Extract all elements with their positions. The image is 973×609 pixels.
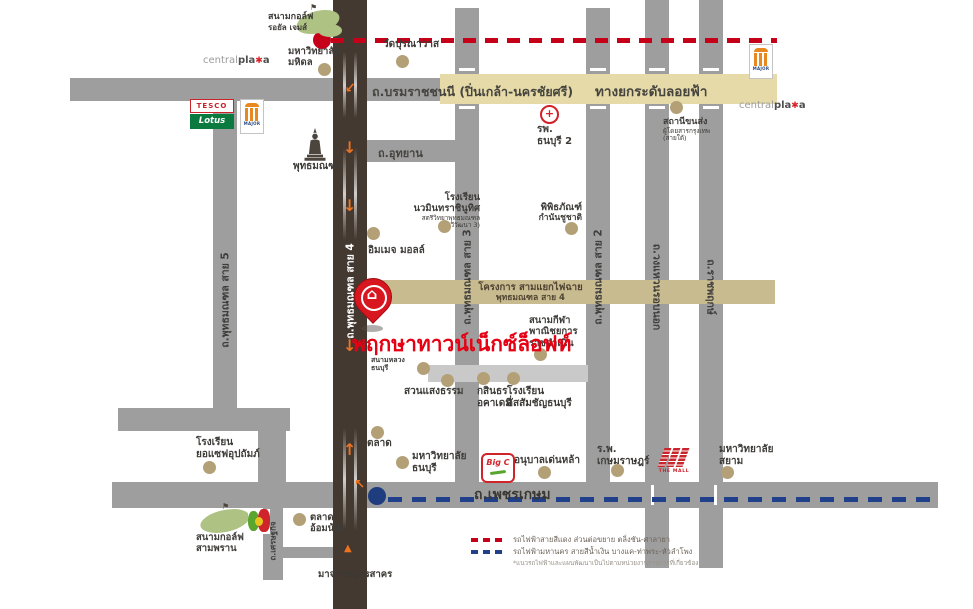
label-line: (สายใต้) — [663, 135, 710, 143]
up-arrow-icon: ↑ — [343, 442, 356, 458]
landmark-southern-bus-terminal: สถานีขนส่ง ผู้โดยสารกรุงเทพ (สายใต้) — [663, 117, 710, 143]
road-marking — [343, 148, 346, 240]
crossing-tick — [459, 106, 475, 109]
road-connector-west-stub — [258, 431, 286, 486]
landmark-wat-puranawat: วัดปุรณาวาส — [383, 39, 439, 51]
crossing-tick — [703, 106, 719, 109]
golf-course-shape — [318, 24, 342, 37]
label-line: ตลาด — [310, 512, 345, 523]
project-location-pin: ⌂ — [352, 276, 392, 332]
landmark-dot — [611, 464, 624, 477]
road-label-skyway: ทางยกระดับลอยฟ้า — [595, 80, 707, 102]
location-map: ถ.บรมราชชนนี (ปิ่นเกล้า-นครชัยศรี) ทางยก… — [0, 0, 973, 609]
landmark-assumption-thonburi: โรงเรียน อัสสัมชัญธนบุรี — [507, 386, 572, 410]
major-text: MAJOR — [241, 121, 263, 126]
road-label-phutthamonthon-sai3: ถ.พุทธมณฑล สาย 3 — [459, 229, 476, 324]
landmark-phutthamonthon-park: พุทธมณฑล — [293, 161, 343, 173]
down-arrow-icon: ↓ — [343, 140, 356, 156]
label-line: มหาวิทยาลัย — [412, 451, 466, 463]
label-line: ร.พ. — [597, 444, 649, 456]
road-connector-south — [283, 547, 333, 558]
landmark-dot — [417, 362, 430, 375]
big-c-logo: Big C — [481, 453, 515, 483]
road-label-phetkasem: ถ.เพชรเกษม — [474, 484, 551, 506]
landmark-siam-university: มหาวิทยาลัย สยาม — [719, 444, 773, 468]
label-line: โรงเรียน — [507, 386, 572, 398]
major-cineplex-logo: MAJOR — [240, 99, 264, 134]
landmark-denla-kindergarten: อนุบาลเด่นหล้า — [514, 455, 580, 467]
tesco-lotus-logo: TESCO Lotus — [190, 99, 234, 129]
golf-flag-icon: ⚑ — [222, 502, 229, 511]
landmark-dot — [565, 222, 578, 235]
crossing-tick — [649, 68, 665, 71]
label-line: อัสสัมชัญธนบุรี — [507, 398, 572, 410]
label-line: ยอแซฟอุปถัมภ์ — [196, 449, 260, 461]
crossing-tick — [459, 68, 475, 71]
road-marking — [354, 148, 357, 240]
crossing-tick — [651, 485, 654, 505]
centralplaza-logo: centralpla✱a — [203, 55, 270, 66]
hospital-cross-icon: + — [540, 105, 559, 124]
label-line: อ้อมน้อย — [310, 523, 345, 534]
legend-note: *แนวรถไฟฟ้าและแผนพัฒนาเป็นไปตามหน่วยงานร… — [513, 558, 698, 568]
landmark-thonburi2-hospital: รพ. ธนบุรี 2 — [537, 124, 572, 148]
legend-blue-line — [471, 550, 506, 554]
label-line: รอยัล เจมส์ — [268, 23, 313, 33]
house-icon: ⌂ — [352, 285, 392, 303]
road-connector-west — [118, 408, 290, 431]
label-line: มหิดล — [288, 57, 340, 68]
lotus-text: Lotus — [190, 114, 234, 129]
triangle-up-icon: ▲ — [344, 544, 352, 554]
label-line: มหาวิทยาลัย — [288, 46, 340, 57]
landmark-dot — [670, 101, 683, 114]
big-c-text: Big C — [483, 455, 513, 471]
label-line: สนามกีฬา — [529, 315, 578, 326]
crossing-tick — [714, 485, 717, 505]
label-line: โรงเรียน — [196, 437, 260, 449]
legend-red-line — [471, 538, 506, 542]
crossing-tick — [703, 68, 719, 71]
major-columns-icon — [754, 48, 768, 52]
label-line: สนามกอล์ฟ — [196, 532, 244, 543]
label-line: ธนบุรี — [412, 463, 466, 475]
label-line: เกษมราษฎร์ — [597, 456, 649, 468]
landmark-kamnan-museum: พิพิธภัณฑ์ กำนันชูชาติ — [528, 202, 582, 224]
landmark-dot — [538, 466, 551, 479]
centralplaza-star-icon: ✱ — [791, 101, 799, 111]
landmark-dot — [438, 220, 451, 233]
crossing-tick — [590, 68, 606, 71]
label-line: มหาวิทยาลัย — [719, 444, 773, 456]
centralplaza-text: central — [739, 100, 774, 111]
landmark-om-noi-market: ตลาด อ้อมน้อย — [310, 512, 345, 535]
road-label-phutthamonthon-sai2: ถ.พุทธมณฑล สาย 2 — [590, 229, 607, 324]
landmark-market: ตลาด — [367, 438, 392, 450]
crossing-tick — [590, 106, 606, 109]
buddha-monument-icon — [303, 128, 327, 162]
label-line: โรงเรียน — [396, 192, 480, 203]
landmark-dot — [721, 466, 734, 479]
label-line: ธนบุรี — [371, 364, 405, 372]
landmark-image-mall: อิมเมจ มอลล์ — [368, 245, 425, 257]
crossing-tick — [649, 106, 665, 109]
the-mall-text: THE MALL — [655, 469, 693, 474]
landmark-suan-saeng-tham: สวนแสงธรรม — [404, 386, 463, 398]
label-line: พิพิธภัณฑ์ — [528, 202, 582, 213]
road-label-ring-road: ถ.วงแหวนรอบนอก — [649, 244, 666, 331]
landmark-dot — [367, 227, 380, 240]
label-line: ธนบุรี 2 — [537, 136, 572, 148]
landmark-royal-gems-golf: สนามกอล์ฟ รอยัล เจมส์ — [268, 12, 313, 32]
road-label-from-samut-sakhon: มาจากสมุทรสาคร — [318, 567, 392, 582]
the-mall-logo: THE MALL — [655, 448, 693, 478]
legend-red-label: รถไฟฟ้าสายสีแดง ส่วนต่อขยาย ตลิ่งชัน-ศาล… — [513, 534, 670, 546]
landmark-thonburi-university: มหาวิทยาลัย ธนบุรี — [412, 451, 466, 475]
centralplaza-star-icon: ✱ — [255, 56, 263, 66]
blue-line-dashed — [388, 497, 935, 502]
landmark-yosef-school: โรงเรียน ยอแซฟอุปถัมภ์ — [196, 437, 260, 461]
tesco-text: TESCO — [190, 99, 234, 113]
road-label-ratchaphruek: ถ.ราชพฤกษ์ — [703, 259, 720, 315]
golf-flag-icon: ⚑ — [310, 3, 317, 12]
label-line: สามพราน — [196, 543, 244, 554]
landmark-kasemrad-hospital: ร.พ. เกษมราษฎร์ — [597, 444, 649, 468]
sampran-logo-icon — [248, 509, 270, 534]
major-columns-icon — [245, 103, 259, 107]
landmark-dot — [396, 456, 409, 469]
project-name: พฤกษาทาวน์เน็กซ์ล็อฟท์ — [352, 328, 571, 361]
label-line: รพ. — [537, 124, 572, 136]
landmark-dot — [203, 461, 216, 474]
landmark-dot — [477, 372, 490, 385]
road-label-utthayan: ถ.อุทยาน — [378, 144, 423, 162]
mrt-project-label: โครงการ สามแยกไฟฉาย พุทธมณฑล สาย 4 — [458, 282, 603, 304]
centralplaza-text: central — [203, 55, 238, 66]
label-line: พุทธมณฑล สาย 4 — [458, 293, 603, 303]
landmark-dot — [293, 513, 306, 526]
label-line: สนามกอล์ฟ — [268, 12, 313, 23]
down-arrow-icon: ↓ — [343, 198, 356, 214]
legend-blue-label: รถไฟฟ้ามหานคร สายสีน้ำเงิน บางแค-ท่าพระ-… — [513, 546, 692, 558]
blue-line-terminus-dot — [368, 487, 386, 505]
landmark-dot — [507, 372, 520, 385]
label-line: โครงการ สามแยกไฟฉาย — [458, 282, 603, 293]
landmark-dot — [396, 55, 409, 68]
centralplaza-logo: centralpla✱a — [739, 100, 806, 111]
big-c-leaf-icon — [490, 470, 506, 475]
road-label-phutthamonthon-sai5: ถ.พุทธมณฑล สาย 5 — [217, 252, 234, 347]
landmark-mahidol-university: มหาวิทยาลัย มหิดล — [288, 46, 340, 69]
road-label-borommaratchachonnani: ถ.บรมราชชนนี (ปิ่นเกล้า-นครชัยศรี) — [372, 82, 573, 102]
major-text: MAJOR — [750, 66, 772, 71]
major-cineplex-logo: MAJOR — [749, 44, 773, 79]
landmark-sampran-golf: สนามกอล์ฟ สามพราน — [196, 532, 244, 555]
landmark-dot — [318, 63, 331, 76]
